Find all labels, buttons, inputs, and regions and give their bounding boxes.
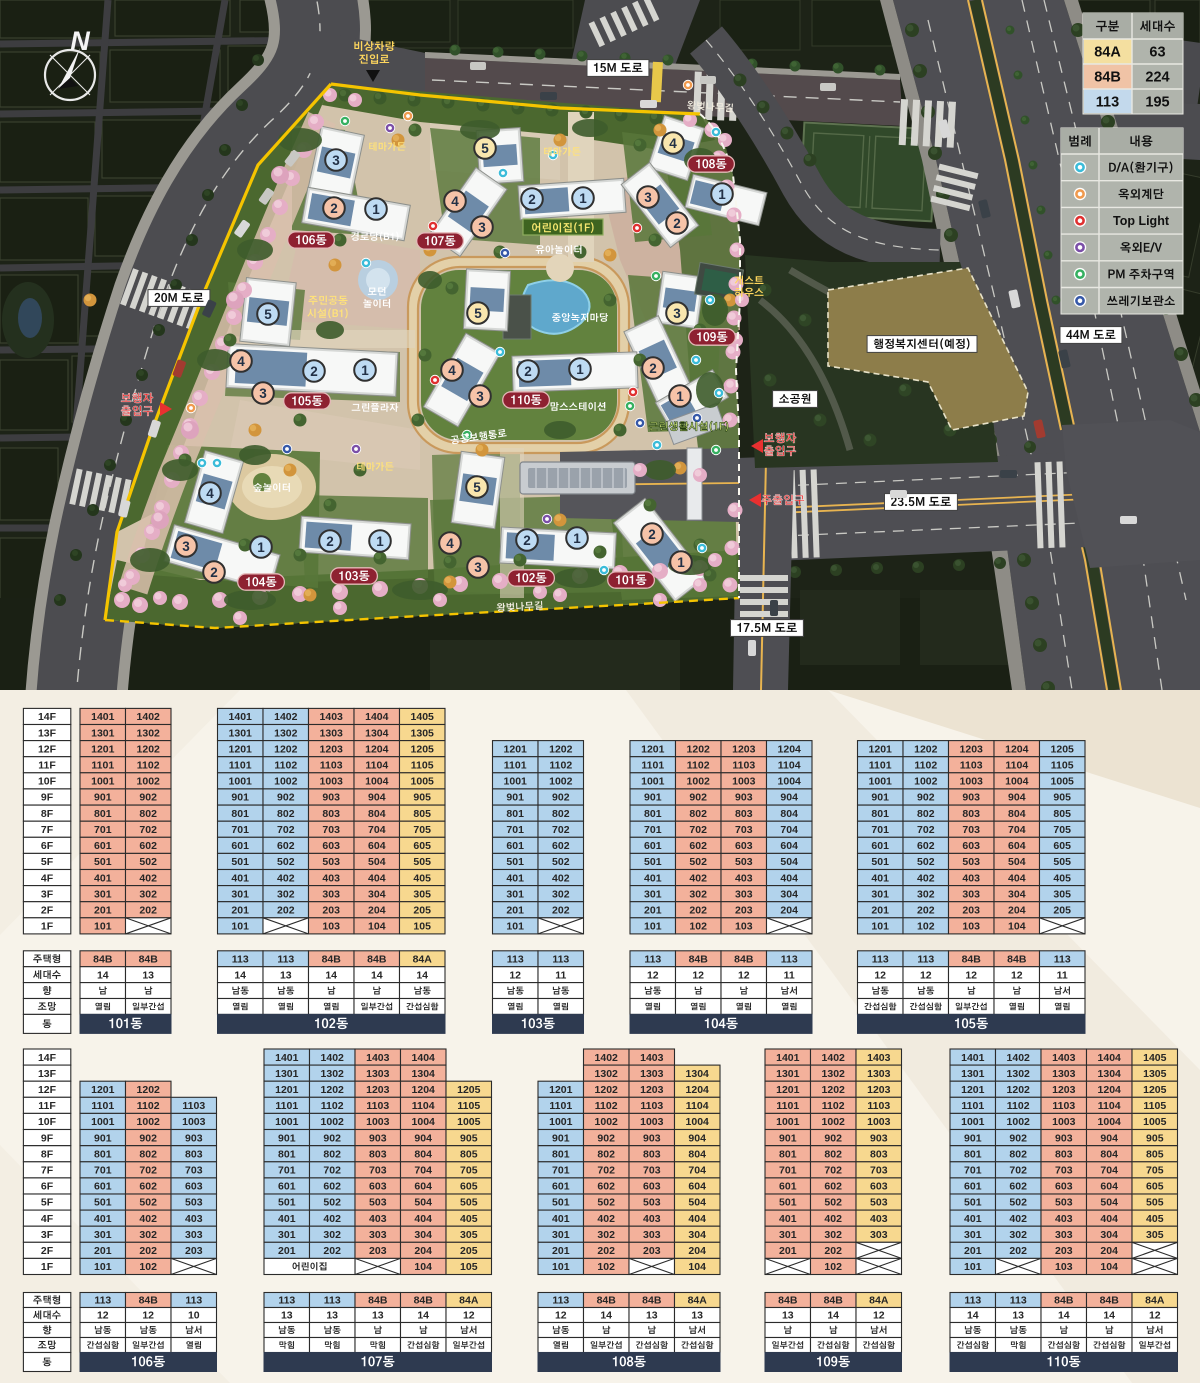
svg-text:303: 303 [369,1229,387,1241]
svg-text:202: 202 [1009,1245,1027,1257]
svg-text:14: 14 [234,969,246,981]
svg-text:1005: 1005 [411,776,435,788]
svg-text:224: 224 [1145,70,1169,86]
svg-text:1404: 1404 [365,711,389,723]
svg-text:1404: 1404 [1098,1052,1122,1064]
svg-text:403: 403 [185,1213,203,1225]
svg-text:804: 804 [1100,1148,1118,1160]
svg-text:402: 402 [139,1213,157,1225]
svg-text:1204: 1204 [778,743,802,755]
svg-text:101: 101 [506,921,524,933]
svg-text:2: 2 [524,364,532,379]
svg-text:1204: 1204 [365,743,389,755]
svg-text:401: 401 [779,1213,797,1225]
svg-text:103: 103 [962,921,980,933]
svg-text:202: 202 [552,905,570,917]
svg-text:84B: 84B [139,1295,159,1307]
svg-text:901: 901 [94,792,112,804]
svg-text:195: 195 [1145,95,1169,111]
svg-text:805: 805 [1146,1148,1164,1160]
svg-text:901: 901 [964,1132,982,1144]
svg-text:603: 603 [1055,1181,1073,1193]
svg-text:601: 601 [94,1181,112,1193]
svg-text:304: 304 [1008,888,1026,900]
svg-text:604: 604 [1100,1181,1118,1193]
svg-text:901: 901 [231,792,249,804]
svg-text:504: 504 [414,1197,432,1209]
svg-text:1: 1 [576,362,584,377]
svg-text:84B: 84B [367,954,387,966]
svg-text:403: 403 [643,1213,661,1225]
svg-text:1003: 1003 [320,776,344,788]
svg-text:1403: 1403 [1052,1052,1076,1064]
svg-text:84B: 84B [93,954,113,966]
svg-text:902: 902 [323,1132,341,1144]
svg-text:703: 703 [735,824,753,836]
svg-text:202: 202 [139,1245,157,1257]
svg-text:1303: 1303 [366,1068,390,1080]
svg-text:805: 805 [1053,808,1071,820]
svg-text:1205: 1205 [1051,743,1075,755]
svg-text:901: 901 [871,792,889,804]
svg-text:1301: 1301 [91,727,115,739]
svg-text:5F: 5F [41,1197,54,1209]
svg-text:803: 803 [735,808,753,820]
svg-text:1201: 1201 [91,1084,115,1096]
svg-text:905: 905 [460,1132,478,1144]
svg-text:201: 201 [278,1245,296,1257]
svg-text:304: 304 [688,1229,706,1241]
svg-text:1002: 1002 [137,776,161,788]
svg-text:12: 12 [1011,969,1023,981]
svg-text:602: 602 [139,1181,157,1193]
svg-text:403: 403 [735,872,753,884]
svg-text:2: 2 [523,533,531,548]
svg-text:301: 301 [231,888,249,900]
svg-text:703: 703 [322,824,340,836]
svg-text:602: 602 [552,840,570,852]
svg-text:602: 602 [277,840,295,852]
svg-text:903: 903 [369,1132,387,1144]
svg-text:302: 302 [689,888,707,900]
svg-text:404: 404 [1008,872,1026,884]
svg-text:1104: 1104 [365,760,388,772]
svg-text:102: 102 [139,1261,157,1273]
svg-text:901: 901 [278,1132,296,1144]
svg-text:1105: 1105 [1051,760,1074,772]
svg-text:1302: 1302 [137,727,161,739]
svg-text:902: 902 [1009,1132,1027,1144]
svg-text:701: 701 [231,824,249,836]
svg-text:302: 302 [139,888,157,900]
svg-text:1004: 1004 [412,1116,436,1128]
svg-text:1202: 1202 [1007,1084,1031,1096]
svg-text:3F: 3F [41,1229,54,1241]
svg-text:12: 12 [463,1310,475,1322]
svg-text:502: 502 [552,856,570,868]
svg-text:401: 401 [94,872,112,884]
svg-text:1002: 1002 [321,1116,345,1128]
svg-text:113: 113 [507,954,524,966]
svg-text:702: 702 [1009,1165,1027,1177]
svg-text:901: 901 [644,792,662,804]
svg-text:403: 403 [962,872,980,884]
svg-text:603: 603 [735,840,753,852]
svg-text:113: 113 [1054,954,1071,966]
svg-text:1003: 1003 [1052,1116,1076,1128]
svg-text:1004: 1004 [778,776,802,788]
svg-text:4: 4 [448,363,456,378]
svg-text:305: 305 [413,888,431,900]
svg-text:302: 302 [323,1229,341,1241]
svg-text:11: 11 [784,969,795,981]
svg-text:1: 1 [372,202,380,217]
svg-text:1403: 1403 [366,1052,390,1064]
svg-text:1201: 1201 [504,743,528,755]
svg-text:204: 204 [368,905,386,917]
svg-text:13: 13 [326,1310,338,1322]
svg-text:1401: 1401 [961,1052,985,1064]
svg-text:12: 12 [1149,1310,1161,1322]
svg-text:603: 603 [185,1181,203,1193]
svg-text:11F: 11F [38,1100,56,1112]
svg-text:1302: 1302 [595,1068,619,1080]
svg-text:203: 203 [185,1245,203,1257]
svg-text:6F: 6F [41,1181,54,1193]
svg-text:703: 703 [870,1165,888,1177]
svg-text:802: 802 [917,808,935,820]
svg-text:1202: 1202 [914,743,938,755]
svg-text:705: 705 [413,824,431,836]
svg-text:84B: 84B [1100,1295,1120,1307]
svg-text:5F: 5F [41,856,54,868]
svg-text:504: 504 [780,856,798,868]
svg-text:101: 101 [552,1261,570,1273]
svg-text:13: 13 [372,1310,384,1322]
svg-text:14: 14 [416,969,428,981]
svg-text:301: 301 [506,888,524,900]
svg-text:84B: 84B [139,954,159,966]
svg-text:704: 704 [414,1165,432,1177]
svg-text:14F: 14F [38,711,57,723]
svg-text:1302: 1302 [274,727,298,739]
svg-text:1202: 1202 [595,1084,619,1096]
svg-text:1001: 1001 [229,776,253,788]
svg-text:1402: 1402 [822,1052,846,1064]
svg-text:4F: 4F [41,872,54,884]
svg-text:801: 801 [278,1148,296,1160]
svg-text:502: 502 [824,1197,842,1209]
svg-text:104: 104 [1100,1261,1118,1273]
svg-text:301: 301 [964,1229,982,1241]
svg-text:4F: 4F [41,1213,54,1225]
svg-text:14: 14 [417,1310,429,1322]
svg-text:601: 601 [779,1181,797,1193]
svg-text:113: 113 [1096,95,1119,111]
svg-text:84B: 84B [1007,954,1027,966]
svg-text:903: 903 [962,792,980,804]
svg-text:202: 202 [597,1245,615,1257]
svg-text:1302: 1302 [321,1068,345,1080]
svg-text:113: 113 [644,954,661,966]
svg-text:14: 14 [97,969,109,981]
svg-text:1103: 1103 [182,1100,205,1112]
svg-text:2: 2 [528,192,536,207]
svg-text:301: 301 [552,1229,570,1241]
svg-text:12: 12 [965,969,977,981]
svg-text:1105: 1105 [1143,1100,1166,1112]
svg-text:901: 901 [779,1132,797,1144]
svg-text:902: 902 [597,1132,615,1144]
svg-text:202: 202 [323,1245,341,1257]
svg-text:403: 403 [870,1213,888,1225]
svg-text:201: 201 [94,1245,112,1257]
svg-text:1102: 1102 [137,1100,160,1112]
svg-text:404: 404 [780,872,798,884]
svg-text:502: 502 [597,1197,615,1209]
svg-text:301: 301 [871,888,889,900]
svg-text:803: 803 [369,1148,387,1160]
svg-text:3: 3 [259,386,267,401]
svg-text:204: 204 [780,905,798,917]
svg-text:7F: 7F [41,824,54,836]
svg-text:701: 701 [552,1165,570,1177]
svg-text:84A: 84A [869,1295,889,1307]
svg-text:501: 501 [779,1197,797,1209]
svg-text:405: 405 [413,872,431,884]
svg-text:403: 403 [322,872,340,884]
svg-text:902: 902 [552,792,570,804]
svg-text:13: 13 [142,969,154,981]
svg-text:403: 403 [1055,1213,1073,1225]
svg-text:902: 902 [917,792,935,804]
svg-text:801: 801 [94,1148,112,1160]
svg-text:84A: 84A [413,954,433,966]
svg-text:501: 501 [552,1197,570,1209]
svg-text:1402: 1402 [1007,1052,1031,1064]
svg-text:12F: 12F [38,1084,57,1096]
svg-text:113: 113 [552,954,569,966]
svg-text:1205: 1205 [457,1084,481,1096]
svg-text:402: 402 [917,872,935,884]
svg-text:101: 101 [964,1261,982,1273]
svg-text:804: 804 [414,1148,432,1160]
svg-text:13F: 13F [38,727,57,739]
svg-text:605: 605 [1053,840,1071,852]
svg-text:601: 601 [278,1181,296,1193]
svg-text:505: 505 [1146,1197,1164,1209]
svg-text:104: 104 [1008,921,1026,933]
svg-text:9F: 9F [41,792,54,804]
svg-text:113: 113 [277,954,294,966]
svg-text:1003: 1003 [960,776,984,788]
svg-text:1204: 1204 [412,1084,436,1096]
svg-text:1103: 1103 [960,760,983,772]
svg-text:201: 201 [779,1245,797,1257]
svg-text:203: 203 [1055,1245,1073,1257]
svg-text:802: 802 [552,808,570,820]
svg-text:405: 405 [1053,872,1071,884]
svg-text:101: 101 [871,921,889,933]
svg-text:1203: 1203 [320,743,344,755]
svg-text:84B: 84B [1054,1295,1074,1307]
svg-text:902: 902 [689,792,707,804]
svg-text:402: 402 [689,872,707,884]
svg-text:1304: 1304 [686,1068,710,1080]
svg-text:4: 4 [669,136,677,151]
svg-text:8F: 8F [41,808,54,820]
svg-text:1101: 1101 [504,760,527,772]
svg-text:1202: 1202 [687,743,711,755]
svg-text:2: 2 [673,216,681,231]
svg-text:1201: 1201 [91,743,115,755]
svg-text:501: 501 [964,1197,982,1209]
svg-text:1001: 1001 [91,1116,115,1128]
svg-text:84A: 84A [459,1295,479,1307]
svg-text:701: 701 [964,1165,982,1177]
svg-text:84B: 84B [962,954,982,966]
svg-text:402: 402 [277,872,295,884]
svg-text:702: 702 [917,824,935,836]
svg-text:501: 501 [278,1197,296,1209]
svg-text:903: 903 [643,1132,661,1144]
svg-text:903: 903 [870,1132,888,1144]
svg-text:1101: 1101 [91,1100,114,1112]
svg-text:1202: 1202 [274,743,298,755]
svg-text:904: 904 [688,1132,706,1144]
svg-text:201: 201 [871,905,889,917]
svg-text:11: 11 [1057,969,1068,981]
svg-text:905: 905 [1146,1132,1164,1144]
svg-text:113: 113 [94,1295,111,1307]
svg-text:1403: 1403 [640,1052,664,1064]
svg-text:2F: 2F [41,905,54,917]
svg-text:201: 201 [964,1245,982,1257]
svg-text:5: 5 [473,480,481,495]
svg-text:84B: 84B [734,954,754,966]
svg-text:1103: 1103 [732,760,755,772]
svg-text:1102: 1102 [549,760,572,772]
svg-text:503: 503 [369,1197,387,1209]
svg-text:113: 113 [232,954,249,966]
svg-text:1003: 1003 [640,1116,664,1128]
svg-text:601: 601 [964,1181,982,1193]
svg-text:5: 5 [264,307,272,322]
svg-text:302: 302 [1009,1229,1027,1241]
svg-text:501: 501 [231,856,249,868]
svg-text:704: 704 [1008,824,1026,836]
svg-text:101: 101 [94,921,112,933]
svg-text:503: 503 [1055,1197,1073,1209]
svg-text:5: 5 [474,306,482,321]
svg-text:701: 701 [278,1165,296,1177]
svg-text:1005: 1005 [1143,1116,1167,1128]
svg-text:203: 203 [735,905,753,917]
svg-text:1103: 1103 [366,1100,389,1112]
svg-text:905: 905 [413,792,431,804]
svg-text:1001: 1001 [961,1116,985,1128]
svg-text:84A: 84A [1145,1295,1165,1307]
svg-text:1103: 1103 [640,1100,663,1112]
svg-text:602: 602 [597,1181,615,1193]
svg-text:302: 302 [597,1229,615,1241]
svg-text:4: 4 [451,194,459,209]
svg-text:704: 704 [1100,1165,1118,1177]
svg-text:1: 1 [579,191,587,206]
svg-text:13: 13 [782,1310,794,1322]
svg-text:204: 204 [1008,905,1026,917]
svg-text:405: 405 [460,1213,478,1225]
svg-text:505: 505 [1053,856,1071,868]
svg-text:603: 603 [962,840,980,852]
svg-text:701: 701 [94,824,112,836]
svg-text:1101: 1101 [776,1100,799,1112]
svg-text:204: 204 [688,1245,706,1257]
svg-text:102: 102 [597,1261,615,1273]
svg-text:1305: 1305 [411,727,435,739]
svg-text:205: 205 [460,1245,478,1257]
svg-text:601: 601 [552,1181,570,1193]
svg-text:14: 14 [1058,1310,1070,1322]
svg-text:302: 302 [552,888,570,900]
svg-text:10: 10 [188,1310,200,1322]
svg-text:903: 903 [735,792,753,804]
svg-text:705: 705 [460,1165,478,1177]
svg-text:1203: 1203 [366,1084,390,1096]
svg-text:504: 504 [1008,856,1026,868]
svg-text:1002: 1002 [137,1116,161,1128]
svg-text:103: 103 [322,921,340,933]
svg-text:1304: 1304 [1098,1068,1122,1080]
svg-text:401: 401 [871,872,889,884]
svg-text:202: 202 [277,905,295,917]
svg-text:1001: 1001 [91,776,115,788]
svg-text:4: 4 [446,536,454,551]
svg-text:702: 702 [689,824,707,836]
svg-text:12: 12 [97,1310,109,1322]
svg-text:801: 801 [506,808,524,820]
svg-text:84A: 84A [1094,45,1121,61]
svg-text:804: 804 [368,808,386,820]
svg-text:1002: 1002 [687,776,711,788]
svg-text:501: 501 [506,856,524,868]
svg-text:11: 11 [555,969,566,981]
svg-text:1104: 1104 [1005,760,1028,772]
svg-text:602: 602 [323,1181,341,1193]
svg-text:11F: 11F [38,760,56,772]
svg-text:12: 12 [647,969,659,981]
svg-text:401: 401 [506,872,524,884]
svg-text:402: 402 [139,872,157,884]
svg-text:601: 601 [871,840,889,852]
svg-text:1F: 1F [41,921,54,933]
svg-text:101: 101 [644,921,662,933]
svg-text:7F: 7F [41,1165,54,1177]
svg-text:1203: 1203 [732,743,756,755]
svg-text:703: 703 [643,1165,661,1177]
svg-text:204: 204 [1100,1245,1118,1257]
svg-text:802: 802 [597,1148,615,1160]
svg-text:503: 503 [870,1197,888,1209]
svg-text:1202: 1202 [822,1084,846,1096]
svg-text:701: 701 [779,1165,797,1177]
svg-text:1003: 1003 [182,1116,206,1128]
svg-text:702: 702 [139,824,157,836]
svg-text:84A: 84A [688,1295,708,1307]
svg-text:12: 12 [920,969,932,981]
svg-text:502: 502 [1009,1197,1027,1209]
svg-text:303: 303 [735,888,753,900]
